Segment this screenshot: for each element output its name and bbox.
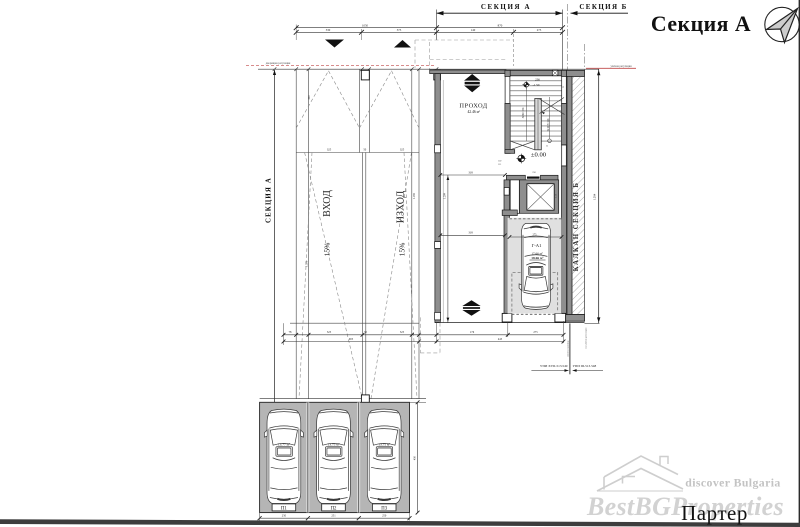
svg-text:325: 325 [400,148,405,152]
svg-text:1050: 1050 [362,23,369,27]
svg-text:318: 318 [468,170,473,174]
svg-text:-1.50: -1.50 [533,83,540,87]
svg-text:318: 318 [468,231,473,235]
svg-text:УПИ III-513.548: УПИ III-513.548 [573,364,597,368]
svg-text:375: 375 [397,28,402,32]
svg-text:250: 250 [282,515,287,518]
svg-text:18.66 м²: 18.66 м² [531,256,543,260]
svg-text:ИЗХОД: ИЗХОД [396,191,407,224]
svg-text:42.46 м²: 42.46 м² [467,110,481,114]
svg-text:13.75 м²: 13.75 м² [327,442,339,446]
svg-text:870: 870 [498,23,503,27]
svg-text:236: 236 [535,78,540,82]
svg-text:П2: П2 [331,506,337,511]
svg-text:±0.00: ±0.00 [531,152,547,159]
svg-text:СЕКЦИЯ А: СЕКЦИЯ А [266,177,273,223]
svg-text:275: 275 [533,331,538,334]
svg-text:15%: 15% [397,243,406,257]
svg-text:УПИ XVII-513.549: УПИ XVII-513.549 [540,364,568,368]
svg-text:330: 330 [326,28,331,32]
svg-text:ВХОД: ВХОД [322,190,333,217]
svg-text:275: 275 [537,28,542,32]
svg-text:5x30=150: 5x30=150 [522,107,525,118]
svg-text:П1: П1 [281,506,287,511]
svg-text:140: 140 [471,28,476,32]
svg-text:9x16.7=150: 9x16.7=150 [547,118,550,131]
svg-text:13.75 м²: 13.75 м² [378,442,390,446]
svg-text:251: 251 [331,515,336,518]
svg-text:Секция А: Секция А [651,12,751,36]
svg-text:13.77 м²: 13.77 м² [278,442,290,446]
svg-text:176: 176 [470,331,475,334]
svg-text:1.294: 1.294 [592,193,596,200]
svg-text:улична регулация: улична регулация [611,65,633,68]
svg-text:905: 905 [349,338,354,341]
svg-text:СЕКЦИЯ А: СЕКЦИЯ А [481,3,531,11]
svg-text:1.294: 1.294 [444,192,447,199]
svg-text:П3: П3 [381,506,387,511]
svg-text:1.294: 1.294 [413,192,416,199]
svg-text:discover Bulgaria: discover Bulgaria [685,476,780,490]
svg-text:325: 325 [327,148,332,152]
svg-text:Партер: Партер [681,501,748,525]
svg-text:имотна граница: имотна граница [566,340,569,357]
svg-text:250: 250 [382,515,387,518]
svg-text:1.373: 1.373 [306,260,309,267]
svg-text:15%: 15% [322,243,331,257]
svg-text:300: 300 [308,95,311,100]
svg-text:17.66 м²: 17.66 м² [531,251,542,255]
svg-text:325: 325 [400,331,405,334]
svg-text:дворищна регулация: дворищна регулация [266,62,291,65]
svg-text:КАЛКАН СЕКЦИЯ Б: КАЛКАН СЕКЦИЯ Б [573,182,580,272]
svg-text:СЕКЦИЯ Б: СЕКЦИЯ Б [579,3,627,11]
svg-text:445: 445 [498,338,503,341]
svg-text:ПРОХОД: ПРОХОД [459,102,487,109]
svg-text:450: 450 [413,455,416,460]
svg-text:на улична регулация: на улична регулация [585,327,588,349]
svg-text:325: 325 [327,331,332,334]
svg-text:Г-А1: Г-А1 [532,243,543,248]
